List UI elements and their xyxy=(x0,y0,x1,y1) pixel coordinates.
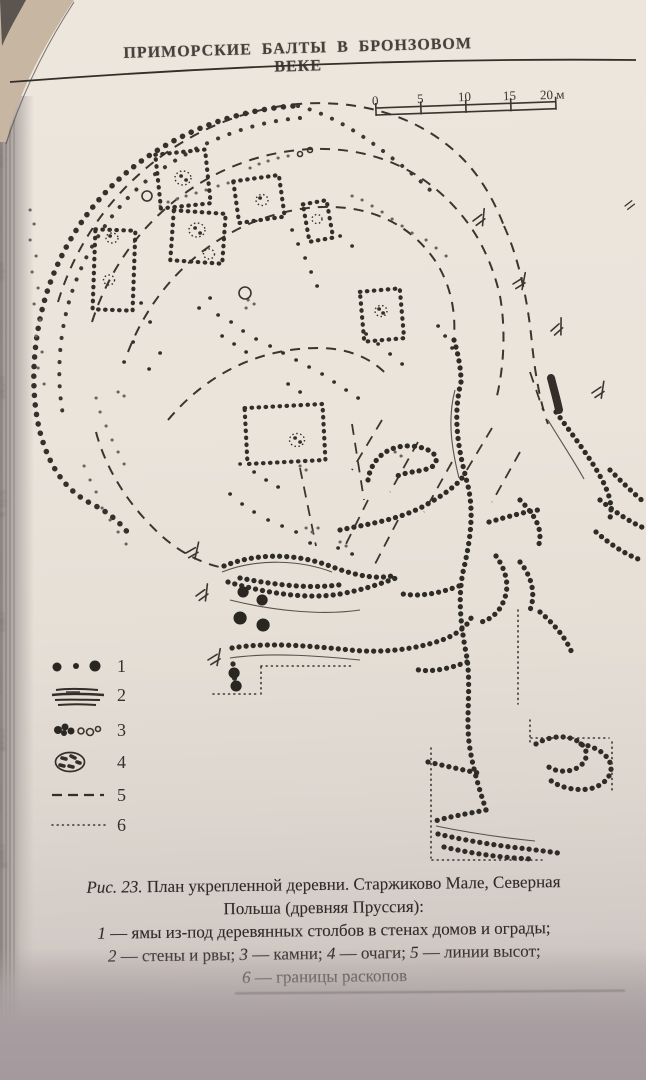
excavation-limits xyxy=(213,610,612,860)
scale-tick-label: 20 м xyxy=(540,87,565,104)
scale-tick-label: 5 xyxy=(417,91,424,107)
legend-number: 1 xyxy=(117,656,126,677)
scale-tick-label: 0 xyxy=(372,93,379,109)
header-rule xyxy=(10,60,636,82)
legend-symbol-stones xyxy=(54,724,101,737)
legend-number: 4 xyxy=(117,752,126,773)
caption-text: Польша (древняя Пруссия): xyxy=(223,897,424,918)
legend-symbol-walls xyxy=(52,689,104,705)
caption-text: План укрепленной деревни. Старжиково Мал… xyxy=(147,872,561,896)
scale-tick-label: 15 xyxy=(503,88,517,104)
figure-label: Рис. 23. xyxy=(86,877,142,897)
page-corner xyxy=(0,0,74,144)
contour-lines xyxy=(58,103,548,568)
houses xyxy=(93,150,404,464)
legend-symbol-postholes xyxy=(53,661,101,672)
legend-number: 5 xyxy=(117,785,126,806)
legend-symbols xyxy=(52,661,106,826)
scale-tick-label: 10 xyxy=(458,89,472,105)
wall-complex xyxy=(222,340,644,859)
photo-background-bottom xyxy=(0,948,646,1080)
caption-text: — ямы из-под деревянных столбов в стенах… xyxy=(110,918,551,942)
legend-number: 6 xyxy=(117,815,126,836)
open-stones xyxy=(142,148,313,300)
legend-number: 3 xyxy=(117,720,126,741)
legend-symbol-hearth xyxy=(56,753,85,772)
caption-item-number: 1 xyxy=(97,924,106,943)
scattered-postholes xyxy=(124,230,452,554)
large-stones xyxy=(240,618,263,625)
legend-number: 2 xyxy=(117,685,126,706)
book-page-photo: гим е ум оро ами отве же, ка VII в над с… xyxy=(0,0,646,1080)
